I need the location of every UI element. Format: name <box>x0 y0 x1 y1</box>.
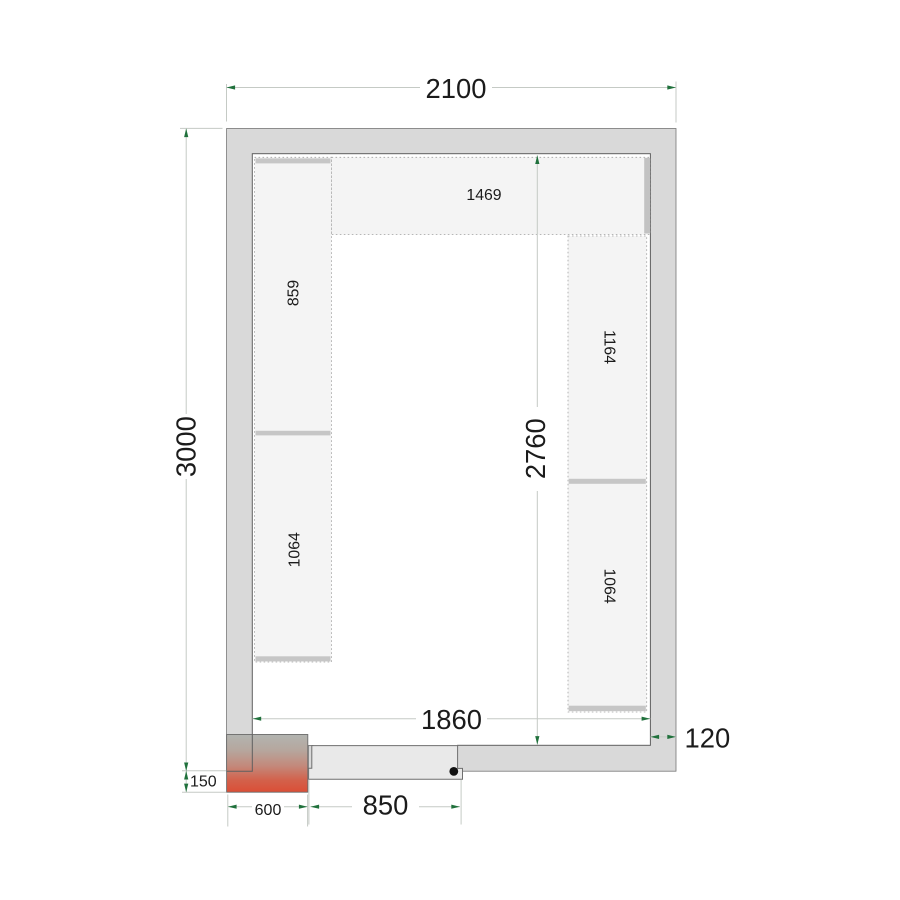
svg-text:1469: 1469 <box>466 187 501 204</box>
svg-text:850: 850 <box>363 790 409 821</box>
svg-text:1860: 1860 <box>421 704 482 735</box>
svg-text:1064: 1064 <box>286 532 303 567</box>
svg-text:2100: 2100 <box>426 73 487 104</box>
svg-text:600: 600 <box>255 802 282 819</box>
svg-text:1064: 1064 <box>600 569 617 604</box>
svg-text:2760: 2760 <box>520 418 551 479</box>
svg-text:120: 120 <box>685 722 731 753</box>
svg-text:150: 150 <box>190 774 217 791</box>
svg-text:1164: 1164 <box>600 330 617 364</box>
svg-text:859: 859 <box>286 280 303 307</box>
svg-text:3000: 3000 <box>170 416 201 477</box>
